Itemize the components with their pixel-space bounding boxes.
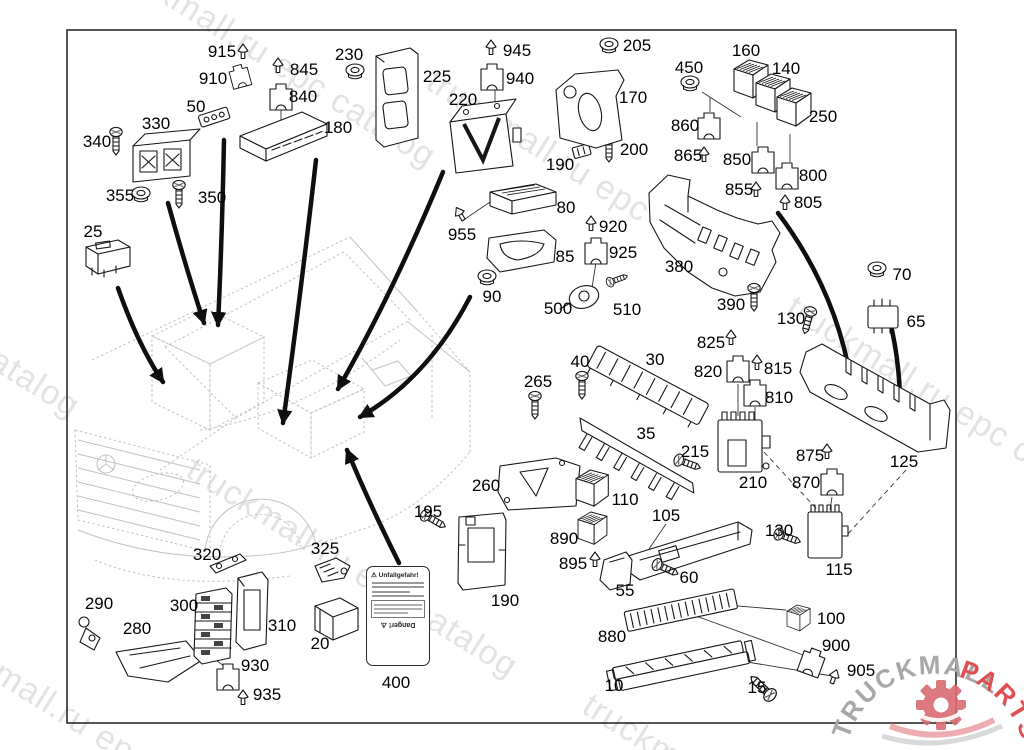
part-10-icon	[606, 638, 756, 692]
part-815-icon	[752, 355, 762, 370]
part-850-icon	[752, 147, 774, 173]
part-90-icon	[478, 270, 496, 285]
part-500-icon	[560, 282, 602, 312]
part-130b-icon	[772, 527, 802, 548]
part-325-icon	[315, 558, 350, 582]
warning-sticker-title: ⚠ Unfallgefahr!	[371, 571, 425, 579]
part-65-icon	[868, 299, 898, 333]
leader-lines	[213, 90, 906, 676]
part-290-icon	[79, 617, 100, 650]
warning-sticker-400: ⚠ Unfallgefahr! Danger! ⚠	[366, 566, 430, 666]
part-800-icon	[776, 163, 798, 189]
diagram-page: truckmall.ru epc catalog truckmall.ru ep…	[0, 0, 1024, 750]
part-915-icon	[238, 44, 248, 59]
part-70-icon	[868, 262, 886, 277]
part-115-icon	[808, 505, 848, 558]
part-40-icon	[576, 371, 588, 399]
part-215-icon	[672, 453, 702, 474]
part-945-icon	[486, 40, 496, 55]
part-450-icon	[681, 76, 699, 91]
part-865-icon	[699, 147, 709, 162]
part-355-icon	[132, 187, 150, 202]
part-210-icon	[718, 412, 770, 472]
part-890-icon	[578, 512, 607, 544]
part-845-icon	[273, 58, 283, 73]
part-300-icon	[194, 588, 232, 664]
part-260-icon	[498, 458, 580, 510]
part-250-icon	[777, 88, 811, 126]
part-920-icon	[586, 216, 596, 231]
part-180-icon	[240, 112, 327, 161]
part-265-icon	[529, 391, 541, 419]
part-230-icon	[346, 64, 364, 79]
truckmall-parts-logo: TRUCKMALL PARTS	[826, 649, 1024, 750]
part-875-icon	[822, 444, 832, 459]
part-195-icon	[418, 508, 448, 533]
part-280-icon	[116, 641, 202, 682]
part-855-icon	[751, 182, 761, 197]
part-340-icon	[110, 127, 122, 155]
part-510-icon	[605, 271, 629, 288]
part-900-icon	[797, 646, 827, 678]
part-80-icon	[490, 184, 556, 214]
part-350-icon	[173, 180, 185, 208]
part-870-icon	[821, 469, 843, 495]
part-15-icon	[746, 671, 779, 703]
part-130a-icon	[799, 305, 818, 335]
part-220-icon	[450, 99, 521, 173]
part-190b-icon	[458, 513, 506, 590]
part-55-icon	[600, 552, 632, 590]
part-905-icon	[827, 668, 841, 685]
part-805-icon	[780, 195, 790, 210]
part-940-icon	[481, 64, 503, 90]
part-20-icon	[315, 598, 358, 640]
part-810-icon	[744, 380, 766, 406]
part-330-icon	[133, 129, 200, 182]
part-170-icon	[556, 70, 624, 148]
part-50-icon	[198, 107, 230, 128]
part-25-icon	[86, 240, 130, 277]
part-925-icon	[585, 238, 607, 264]
part-390-icon	[748, 283, 760, 311]
part-895-icon	[590, 552, 600, 567]
part-100-icon	[787, 605, 810, 631]
part-110-icon	[576, 470, 608, 506]
part-105-icon	[626, 522, 752, 580]
warning-sticker-midtext	[371, 600, 425, 618]
part-205-icon	[600, 38, 618, 53]
part-225-icon	[376, 48, 418, 147]
part-930-icon	[217, 664, 239, 690]
part-85-icon	[487, 230, 556, 272]
part-955-icon	[452, 205, 468, 223]
part-125-icon	[800, 344, 950, 452]
part-380-icon	[649, 175, 780, 296]
part-910-icon	[228, 63, 252, 89]
part-820-icon	[727, 356, 749, 382]
warning-sticker-footer: Danger! ⚠	[371, 621, 425, 629]
parts-diagram-art: TRUCKMALL PARTS	[0, 0, 1024, 750]
part-935-icon	[238, 690, 248, 705]
part-840-icon	[270, 84, 292, 110]
part-860-icon	[698, 113, 720, 139]
part-30-icon	[584, 345, 709, 431]
part-310-icon	[236, 572, 268, 650]
part-825-icon	[726, 330, 736, 345]
van-outline-sketch	[75, 237, 470, 581]
